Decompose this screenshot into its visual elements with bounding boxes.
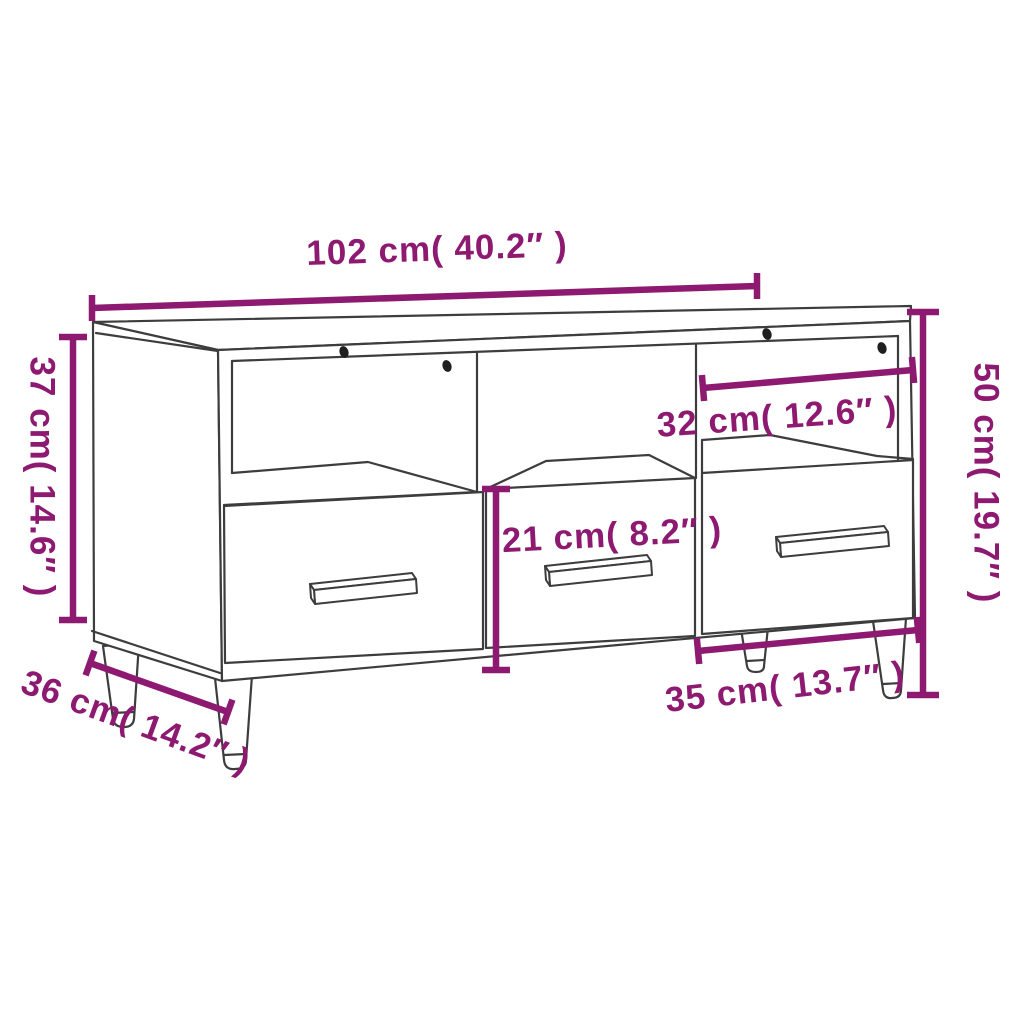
right-height-dimension-label: 50 cm( 19.7″ )	[969, 363, 1004, 604]
leg-back-right-foot-line	[747, 660, 764, 661]
width-dimension-label: 102 cm( 40.2″ )	[306, 227, 568, 271]
dimension-line-height-left	[59, 337, 87, 620]
tv-cabinet-line-drawing	[0, 0, 1024, 1024]
product-dimension-diagram: 102 cm( 40.2″ ) 37 cm( 14.6″ ) 36 cm( 14…	[0, 0, 1024, 1024]
left-height-dimension-label: 37 cm( 14.6″ )	[25, 357, 60, 598]
drawer-left	[224, 492, 483, 663]
cabinet-left-side-panel	[93, 322, 222, 681]
